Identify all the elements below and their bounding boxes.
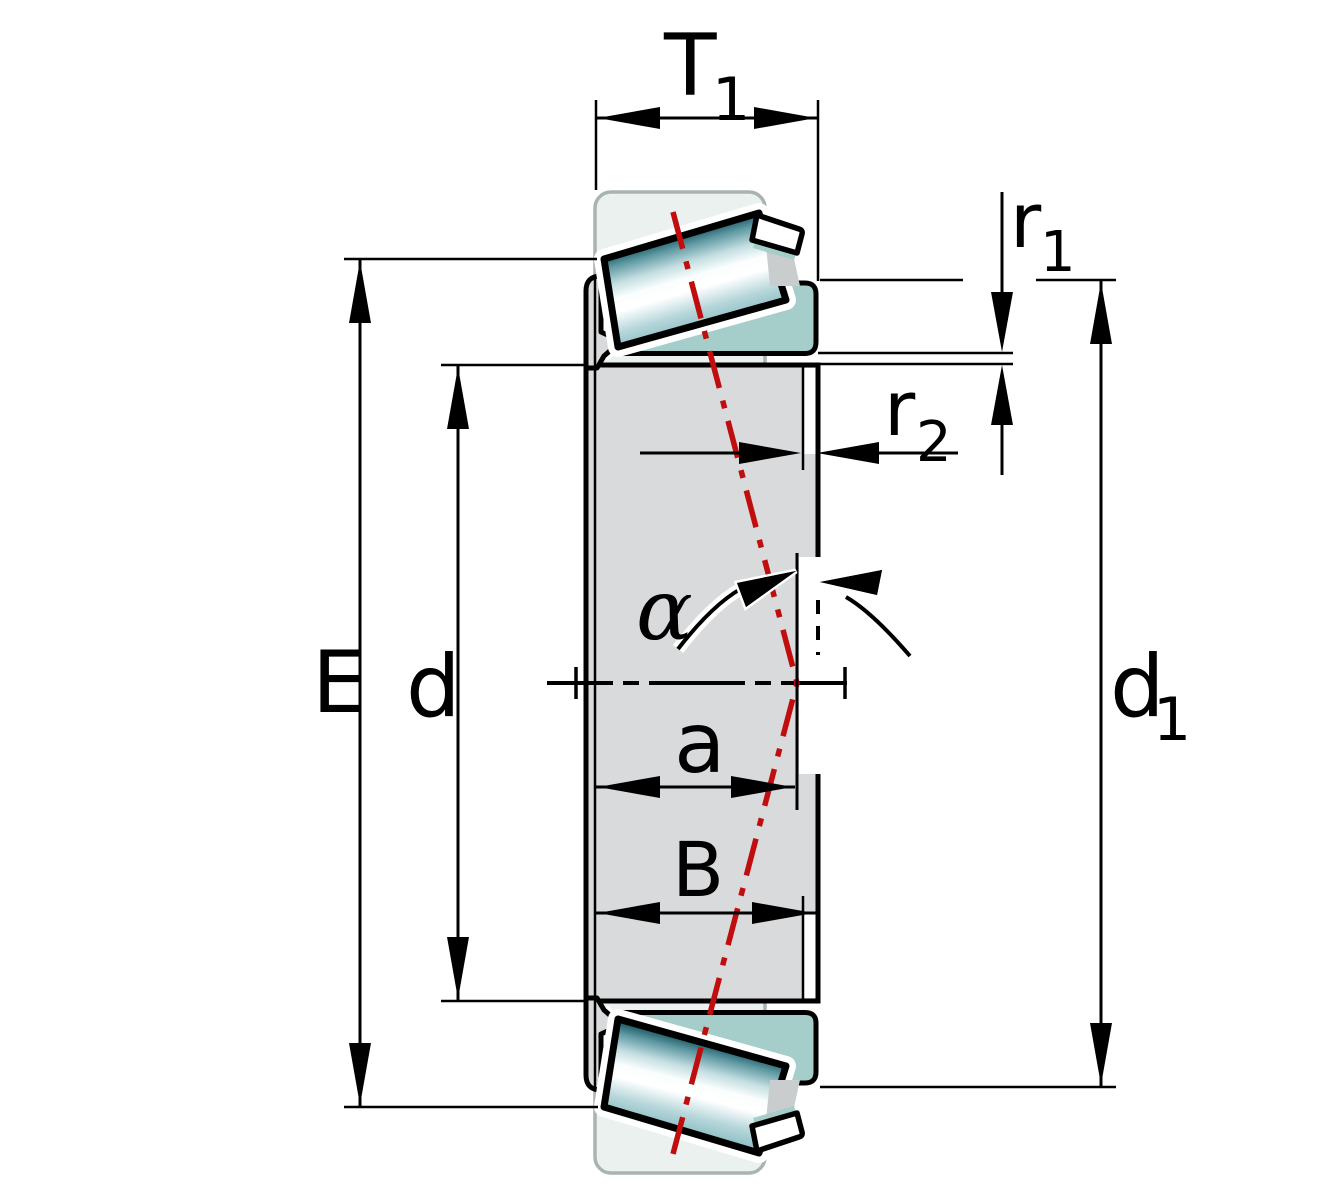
cone-chamfer-gap-top (803, 368, 816, 454)
d-label: d (406, 637, 461, 737)
r2-label-sub: 2 (916, 410, 952, 475)
alpha-label: α (636, 561, 693, 659)
r1-label: r (1010, 176, 1042, 265)
B-label: B (672, 825, 724, 914)
r2-label: r (884, 364, 916, 453)
cone-edge-halo (799, 557, 822, 774)
T1-label: T (663, 16, 717, 116)
r1-label-sub: 1 (1040, 220, 1076, 285)
cone-chamfer-gap-bottom (803, 912, 816, 998)
diagram-canvas: T 1 E d d 1 r 1 r 2 a B (0, 0, 1330, 1200)
d1-label-sub: 1 (1153, 685, 1191, 755)
T1-label-sub: 1 (712, 65, 750, 135)
E-label: E (312, 633, 366, 733)
a-label: a (674, 694, 725, 792)
bearing-dimension-drawing: T 1 E d d 1 r 1 r 2 a B (0, 0, 1330, 1200)
